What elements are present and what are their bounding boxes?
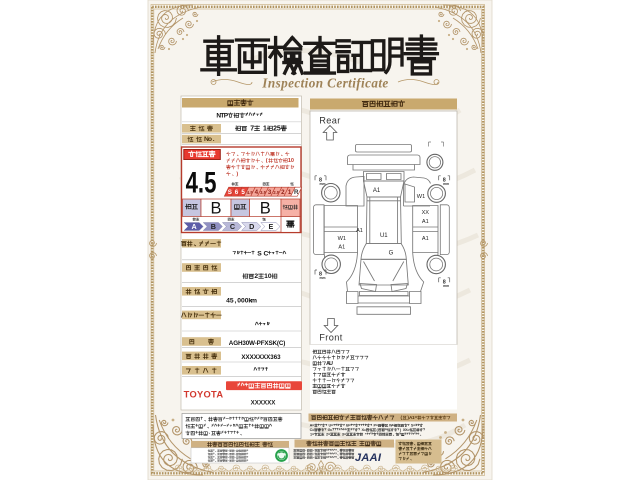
svg-text:W1: W1 [338, 236, 346, 242]
svg-text:C: C [263, 251, 268, 258]
svg-text:B: B [211, 222, 216, 231]
svg-text:m: m [251, 297, 257, 304]
svg-text:5: 5 [230, 297, 234, 304]
svg-text:Rear: Rear [319, 116, 341, 126]
svg-text:5: 5 [277, 125, 281, 132]
svg-text:R: R [294, 189, 299, 196]
svg-text:,: , [234, 297, 236, 304]
svg-text:E: E [269, 222, 274, 231]
svg-text:=: = [415, 415, 418, 420]
svg-text:G: G [389, 251, 394, 257]
svg-text:AGH30W-PFXSK(C): AGH30W-PFXSK(C) [229, 340, 285, 347]
svg-text:.: . [213, 136, 215, 143]
svg-text:XXXXXXX363: XXXXXXX363 [241, 354, 281, 361]
svg-text:2: 2 [254, 273, 258, 280]
svg-text:Front: Front [319, 333, 342, 343]
svg-text:1: 1 [263, 125, 267, 132]
svg-text:P: P [224, 112, 229, 119]
svg-text:B: B [210, 200, 221, 218]
svg-text:0: 0 [291, 158, 294, 164]
svg-text:A1: A1 [338, 245, 345, 251]
svg-text:7: 7 [250, 125, 254, 132]
svg-text:A1: A1 [373, 188, 381, 194]
svg-text:D: D [249, 222, 254, 231]
svg-text:C: C [230, 222, 235, 231]
svg-text:(: ( [266, 158, 268, 164]
svg-text:U: U [329, 361, 333, 367]
svg-text:A1: A1 [356, 228, 363, 234]
svg-text:B: B [260, 200, 271, 218]
svg-text:A1: A1 [422, 219, 429, 225]
svg-text:mm: mm [443, 182, 449, 186]
svg-text:XX: XX [422, 210, 430, 216]
svg-text:mm: mm [319, 182, 325, 186]
svg-text:XXXXXX: XXXXXX [251, 400, 277, 407]
svg-text:TOYOTA: TOYOTA [184, 390, 224, 400]
svg-text:U1: U1 [380, 233, 388, 239]
svg-text:4.5: 4.5 [186, 165, 217, 199]
svg-text:S: S [257, 251, 262, 258]
svg-text:): ) [236, 171, 238, 177]
svg-text:A1: A1 [422, 236, 429, 242]
svg-text:mm: mm [319, 276, 325, 280]
svg-text:A: A [191, 222, 196, 231]
svg-text:o: o [208, 136, 212, 143]
svg-text:W1: W1 [417, 194, 425, 200]
svg-text:Inspection Certificate: Inspection Certificate [261, 76, 388, 91]
svg-text:JAAI: JAAI [355, 452, 382, 464]
svg-text:0: 0 [268, 273, 272, 280]
svg-text:mm: mm [443, 284, 449, 288]
